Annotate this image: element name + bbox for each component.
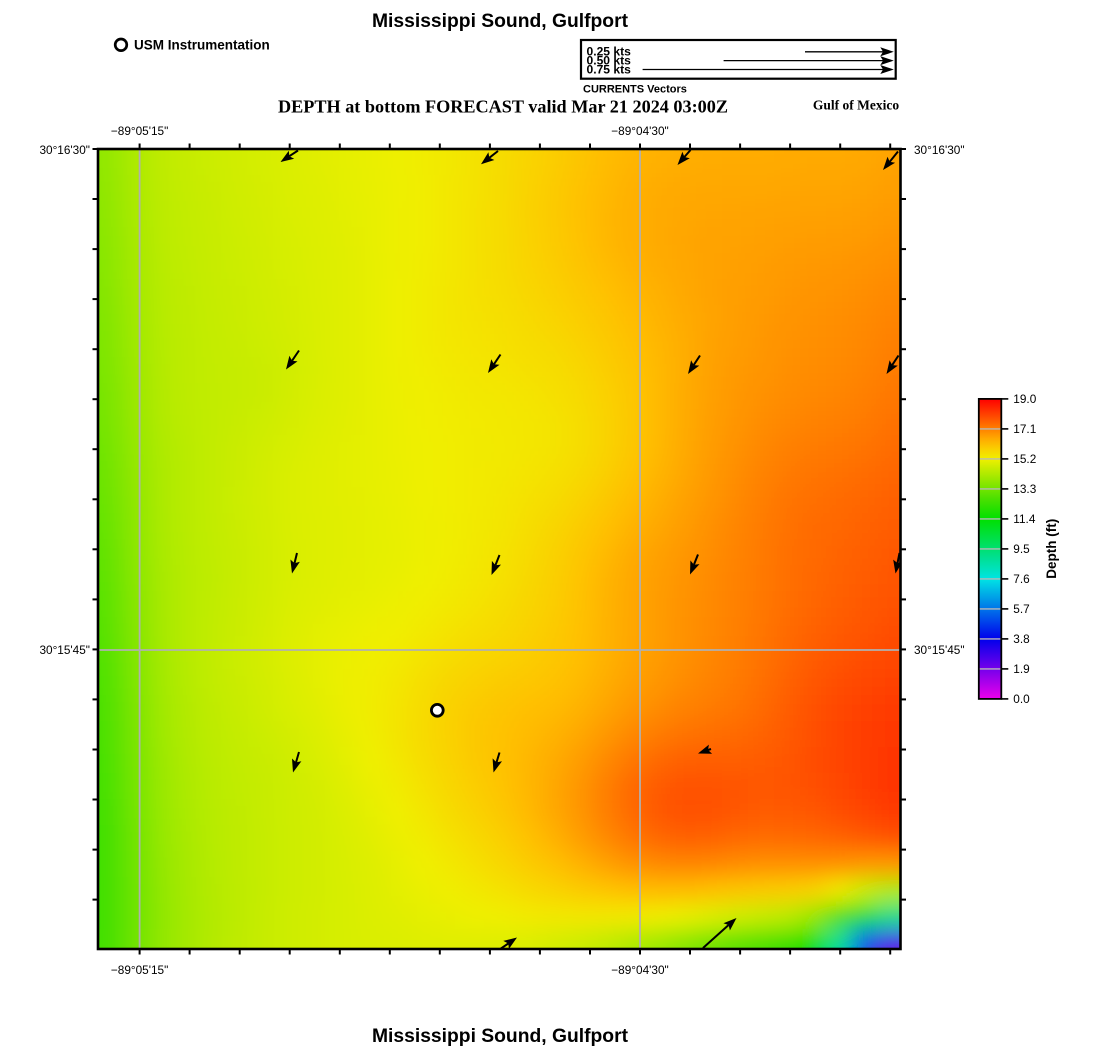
svg-text:9.5: 9.5 <box>1013 542 1030 556</box>
svg-text:Mississippi Sound, Gulfport: Mississippi Sound, Gulfport <box>372 11 629 32</box>
svg-text:Mississippi Sound, Gulfport: Mississippi Sound, Gulfport <box>372 1026 629 1047</box>
svg-text:15.2: 15.2 <box>1013 452 1036 466</box>
svg-text:30°15'45": 30°15'45" <box>39 643 90 657</box>
svg-text:−89°04'30": −89°04'30" <box>611 124 668 138</box>
svg-text:CURRENTS Vectors: CURRENTS Vectors <box>583 83 687 95</box>
svg-text:7.6: 7.6 <box>1013 572 1030 586</box>
svg-text:Depth (ft): Depth (ft) <box>1044 519 1059 579</box>
svg-text:1.9: 1.9 <box>1013 662 1029 676</box>
svg-text:−89°05'15": −89°05'15" <box>111 124 168 138</box>
svg-text:5.7: 5.7 <box>1013 602 1029 616</box>
svg-text:13.3: 13.3 <box>1013 482 1036 496</box>
svg-text:19.0: 19.0 <box>1013 392 1036 406</box>
svg-text:11.4: 11.4 <box>1013 512 1036 526</box>
svg-text:30°16'30": 30°16'30" <box>39 143 90 157</box>
svg-text:0.75 kts: 0.75 kts <box>587 63 632 77</box>
svg-text:−89°05'15": −89°05'15" <box>111 963 168 977</box>
svg-text:3.8: 3.8 <box>1013 632 1030 646</box>
svg-text:30°16'30": 30°16'30" <box>914 143 965 157</box>
svg-text:USM Instrumentation: USM Instrumentation <box>134 38 270 53</box>
svg-text:−89°04'30": −89°04'30" <box>611 963 668 977</box>
svg-text:0.0: 0.0 <box>1013 692 1030 706</box>
svg-text:DEPTH at bottom FORECAST valid: DEPTH at bottom FORECAST valid Mar 21 20… <box>278 97 728 117</box>
svg-text:17.1: 17.1 <box>1013 422 1036 436</box>
svg-text:30°15'45": 30°15'45" <box>914 643 965 657</box>
svg-text:Gulf of Mexico: Gulf of Mexico <box>813 98 899 113</box>
